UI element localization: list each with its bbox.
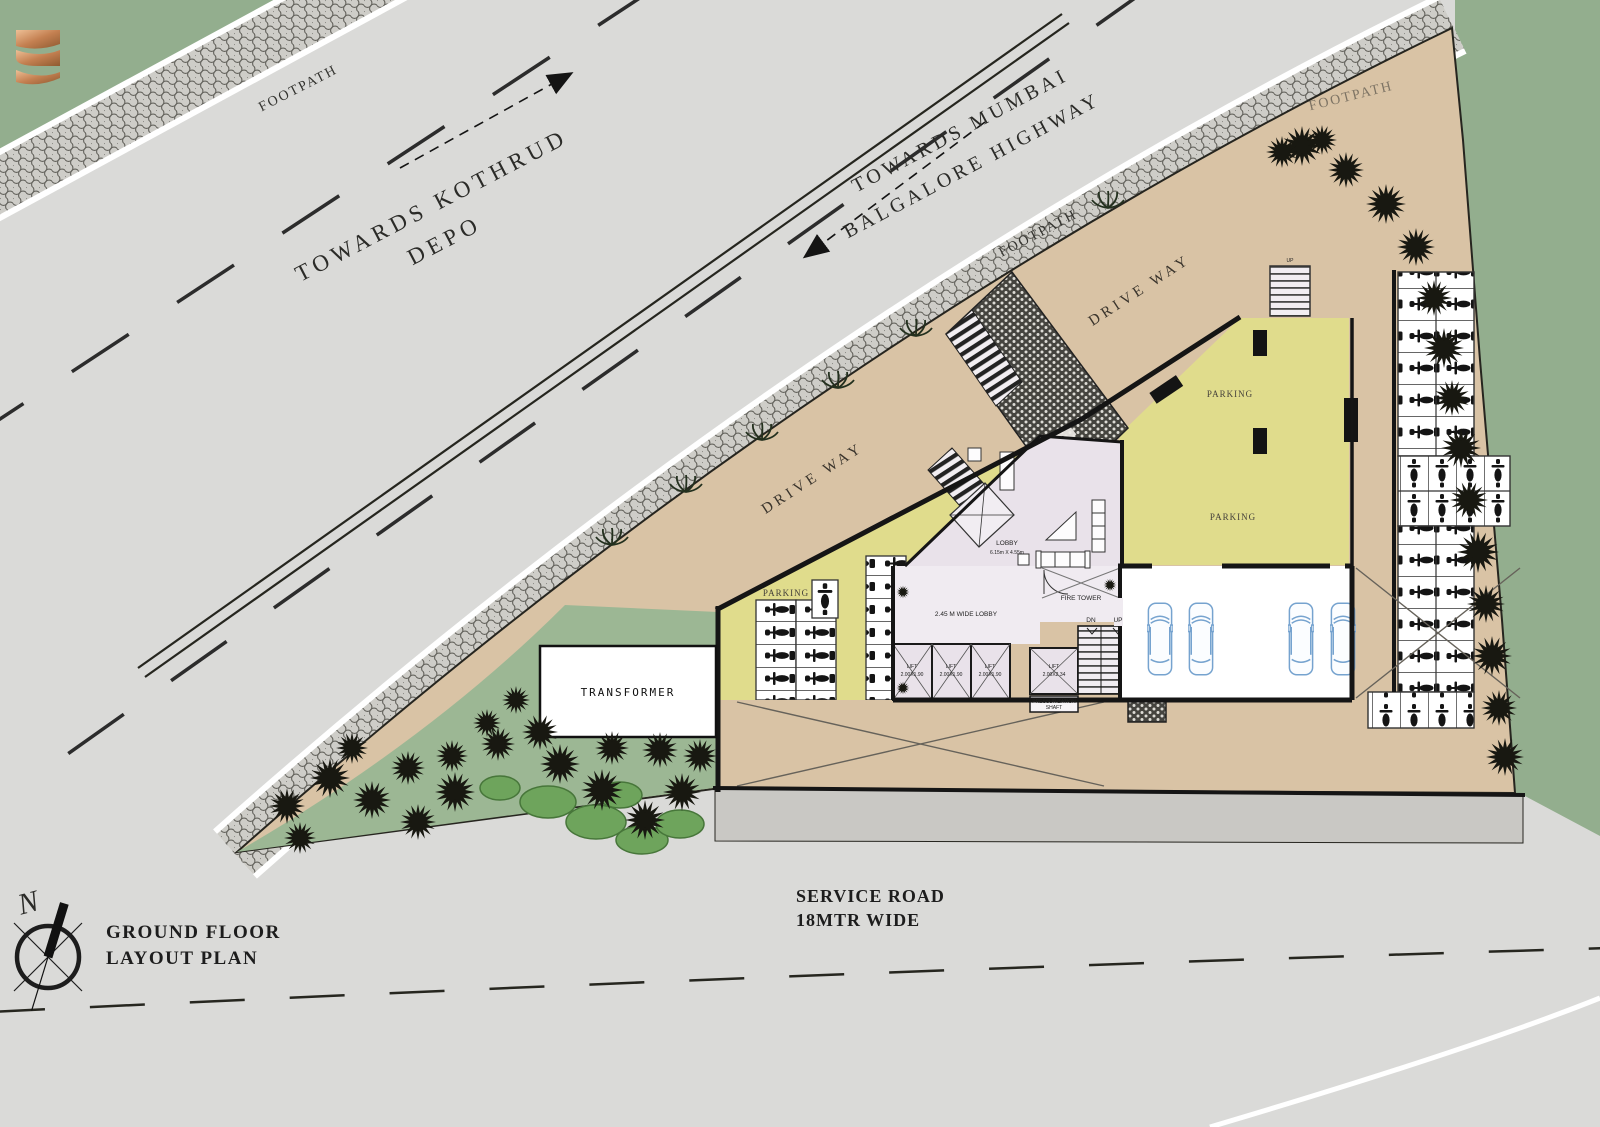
ground-floor-layout-plan: UP FOYER ENTRY PARKING [0, 0, 1600, 1127]
title-line2: LAYOUT PLAN [106, 948, 258, 969]
fire-lift-dim: 2.00X2.34 [1043, 672, 1066, 678]
car-icon [1188, 603, 1214, 675]
wide-lobby-label: 2.45 M WIDE LOBBY [935, 611, 998, 618]
car-icon [1288, 603, 1314, 675]
site-plan-drawing: UP FOYER ENTRY PARKING [0, 0, 1600, 1127]
lift1-label: LIFT [907, 664, 917, 670]
lift3-label: LIFT [985, 664, 995, 670]
lift3-dim: 2.00X1.90 [979, 672, 1002, 678]
title-line1: GROUND FLOOR [106, 922, 281, 943]
lift2-label: LIFT [946, 664, 956, 670]
lift2-dim: 2.00X1.90 [940, 672, 963, 678]
dn-label: DN [1086, 617, 1096, 624]
lift1-dim: 2.00X1.90 [901, 672, 924, 678]
lift-lobby-corridor [893, 566, 1040, 644]
lobby-label: LOBBY [996, 540, 1018, 547]
service-road-line1: SERVICE ROAD [796, 886, 945, 906]
brand-logo [16, 30, 60, 84]
lobby-dim: 6.15m X 4.55m [990, 550, 1024, 556]
car-icon [1147, 603, 1173, 675]
upper-stair [1270, 266, 1310, 316]
transformer-yard: TRANSFORMER [540, 646, 716, 737]
upper-stair-label: UP [1287, 258, 1295, 264]
plot-apron [715, 789, 1523, 843]
parking-label-1: PARKING [1207, 389, 1253, 399]
fire-tower-label: FIRE TOWER [1061, 595, 1102, 602]
shaft-hatch-box [1128, 700, 1166, 722]
fire-lift-label: LIFT [1049, 664, 1059, 670]
transformer-label: TRANSFORMER [581, 686, 676, 699]
parking-label-2: PARKING [1210, 512, 1256, 522]
pressurization-line2: SHAFT [1046, 705, 1062, 711]
service-road-line2: 18MTR WIDE [796, 910, 920, 930]
up-label: UP [1113, 617, 1122, 624]
parking-label-left: PARKING [763, 588, 809, 598]
